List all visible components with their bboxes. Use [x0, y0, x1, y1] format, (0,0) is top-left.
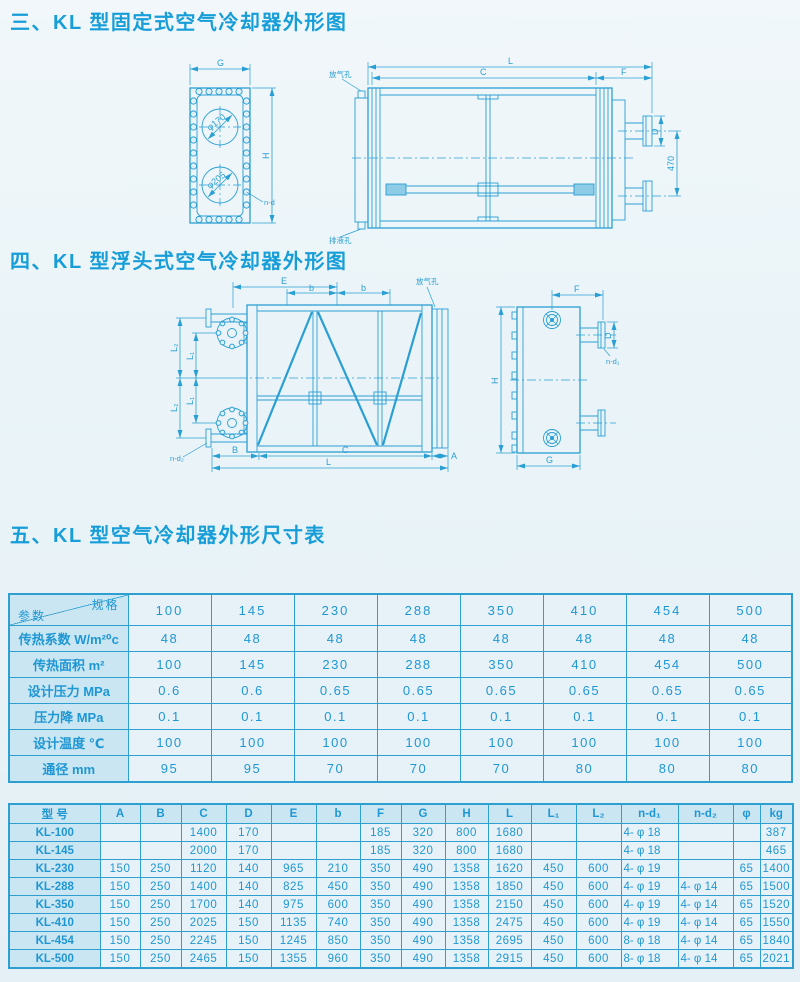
dimension-value: 2915 — [488, 950, 531, 969]
dimension-value: 960 — [316, 950, 360, 969]
parameter-value: 0.1 — [543, 704, 626, 730]
dimension-value — [271, 842, 316, 860]
dimension-column-header: E — [271, 804, 316, 824]
section3-title: 三、KL 型固定式空气冷却器外形图 — [10, 6, 347, 35]
dimension-value: 1850 — [488, 878, 531, 896]
dimension-value: 1358 — [445, 932, 488, 950]
model-row: KL-5001502502465150135596035049013582915… — [9, 950, 793, 969]
param-axis-label: 参数 — [18, 607, 46, 624]
parameter-row: 传热系数 W/m²⁰c4848484848484848 — [9, 626, 792, 652]
dimension-value: 600 — [576, 878, 621, 896]
parameter-value: 0.65 — [626, 678, 709, 704]
drain-hole-label: 排液孔 — [329, 235, 352, 245]
dimension-value: 150 — [100, 896, 140, 914]
dimension-value: 150 — [100, 878, 140, 896]
dimension-value — [576, 842, 621, 860]
dimension-value: 1358 — [445, 896, 488, 914]
parameter-label: 传热系数 W/m²⁰c — [9, 626, 128, 652]
dimension-value: 2475 — [488, 914, 531, 932]
dim-D: D — [650, 128, 660, 135]
model-row: KL-145200017018532080016804- φ 18465 — [9, 842, 793, 860]
dimension-value: 825 — [271, 878, 316, 896]
model-name: KL-410 — [9, 914, 100, 932]
section5-title: 五、KL 型空气冷却器外形尺寸表 — [10, 519, 326, 548]
dim-L1-top: L₁ — [185, 352, 195, 360]
dim-G: G — [546, 455, 553, 465]
dimension-value: 450 — [531, 878, 576, 896]
parameter-value: 0.6 — [128, 678, 211, 704]
dim-L: L — [326, 457, 331, 467]
dimension-value — [678, 842, 733, 860]
dimension-value: 600 — [316, 896, 360, 914]
dimension-value: 4- φ 19 — [621, 878, 678, 896]
dimension-column-header: L — [488, 804, 531, 824]
dimension-column-header: H — [445, 804, 488, 824]
dimension-column-header: F — [360, 804, 401, 824]
dimension-column-header: G — [401, 804, 445, 824]
performance-table: 规格 参数 100145230288350410454500 传热系数 W/m²… — [8, 593, 793, 783]
parameter-value: 100 — [377, 730, 460, 756]
dimension-value: 1358 — [445, 878, 488, 896]
parameter-value: 454 — [626, 652, 709, 678]
dimension-value: 4- φ 14 — [678, 878, 733, 896]
dimension-value: 975 — [271, 896, 316, 914]
dimension-column-header: kg — [760, 804, 793, 824]
spec-column-header: 100 — [128, 594, 211, 626]
document-page: 三、KL 型固定式空气冷却器外形图 四、KL 型浮头式空气冷却器外形图 五、KL… — [0, 0, 800, 982]
dimension-value: 65 — [733, 914, 760, 932]
dimension-value: 2025 — [181, 914, 226, 932]
parameter-value: 70 — [294, 756, 377, 783]
dimension-value: 350 — [360, 950, 401, 969]
parameter-label: 设计温度 ℃ — [9, 730, 128, 756]
parameter-value: 48 — [626, 626, 709, 652]
dim-H: H — [261, 153, 271, 160]
dimension-value — [140, 824, 181, 842]
dimension-value: 1400 — [760, 860, 793, 878]
spec-column-header: 350 — [460, 594, 543, 626]
dimension-value: 1358 — [445, 950, 488, 969]
dimension-value: 490 — [401, 878, 445, 896]
model-row: KL-2881502501400140825450350490135818504… — [9, 878, 793, 896]
parameter-value: 0.65 — [460, 678, 543, 704]
dimension-value: 150 — [226, 914, 271, 932]
dim-L1-bottom: L₁ — [185, 397, 195, 405]
parameter-row: 设计压力 MPa0.60.60.650.650.650.650.650.65 — [9, 678, 792, 704]
parameter-value: 95 — [128, 756, 211, 783]
dimension-value: 450 — [531, 896, 576, 914]
dimension-value: 140 — [226, 878, 271, 896]
dimension-value: 850 — [316, 932, 360, 950]
bolt-lugs — [512, 312, 517, 452]
dimension-value: 1520 — [760, 896, 793, 914]
dimension-value — [531, 842, 576, 860]
dimension-value: 4- φ 19 — [621, 860, 678, 878]
parameter-row: 传热面积 m²100145230288350410454500 — [9, 652, 792, 678]
model-name: KL-500 — [9, 950, 100, 969]
dimension-value: 1358 — [445, 914, 488, 932]
dimension-value: 8- φ 18 — [621, 932, 678, 950]
dimension-value: 210 — [316, 860, 360, 878]
parameter-label: 传热面积 m² — [9, 652, 128, 678]
spec-axis-label: 规格 — [91, 596, 119, 613]
dim-L2-bottom: L₂ — [169, 403, 179, 412]
dimension-value: 965 — [271, 860, 316, 878]
parameter-value: 80 — [543, 756, 626, 783]
dimension-value: 490 — [401, 932, 445, 950]
parameter-value: 0.65 — [543, 678, 626, 704]
parameter-value: 100 — [543, 730, 626, 756]
dimension-value: 800 — [445, 842, 488, 860]
parameter-value: 48 — [211, 626, 294, 652]
parameter-value: 0.1 — [460, 704, 543, 730]
spec-column-header: 288 — [377, 594, 460, 626]
dimension-value: 740 — [316, 914, 360, 932]
dimension-value: 150 — [226, 950, 271, 969]
dimension-value: 450 — [531, 860, 576, 878]
dimension-value: 600 — [576, 950, 621, 969]
parameter-value: 95 — [211, 756, 294, 783]
dimension-value: 2695 — [488, 932, 531, 950]
parameter-value: 0.65 — [377, 678, 460, 704]
parameter-value: 0.1 — [128, 704, 211, 730]
parameter-value: 48 — [128, 626, 211, 652]
parameter-value: 70 — [377, 756, 460, 783]
dimension-value: 250 — [140, 878, 181, 896]
upper-flange — [544, 312, 561, 329]
dimension-value: 185 — [360, 842, 401, 860]
spec-column-header: 230 — [294, 594, 377, 626]
parameter-row: 通径 mm9595707070808080 — [9, 756, 792, 783]
dimension-value: 1680 — [488, 842, 531, 860]
model-name: KL-454 — [9, 932, 100, 950]
dimension-column-header: L₂ — [576, 804, 621, 824]
dimension-value — [733, 824, 760, 842]
dimension-value — [678, 824, 733, 842]
dimension-value: 1245 — [271, 932, 316, 950]
nozzle-dia-170: φ170 — [205, 112, 228, 133]
dimension-value: 450 — [531, 914, 576, 932]
model-name: KL-350 — [9, 896, 100, 914]
dimension-value: 1620 — [488, 860, 531, 878]
parameter-value: 100 — [128, 730, 211, 756]
dimension-value: 4- φ 19 — [621, 914, 678, 932]
dimension-value: 490 — [401, 896, 445, 914]
parameter-value: 0.1 — [626, 704, 709, 730]
spec-column-header: 145 — [211, 594, 294, 626]
parameter-value: 48 — [460, 626, 543, 652]
parameter-label: 压力降 MPa — [9, 704, 128, 730]
spec-column-header: 500 — [709, 594, 792, 626]
parameter-value: 80 — [626, 756, 709, 783]
dim-F: F — [574, 284, 580, 294]
dimension-column-header: D — [226, 804, 271, 824]
dimension-value: 490 — [401, 860, 445, 878]
dimension-value — [531, 824, 576, 842]
parameter-value: 100 — [294, 730, 377, 756]
dimension-value — [733, 842, 760, 860]
parameter-value: 80 — [709, 756, 792, 783]
parameter-value: 0.1 — [211, 704, 294, 730]
dimension-value: 65 — [733, 878, 760, 896]
dimension-value: 250 — [140, 860, 181, 878]
dim-L: L — [508, 56, 513, 66]
dimension-value: 600 — [576, 896, 621, 914]
dimension-value: 4- φ 18 — [621, 842, 678, 860]
dimension-value: 350 — [360, 860, 401, 878]
dimension-value: 4- φ 14 — [678, 914, 733, 932]
dimension-value: 600 — [576, 914, 621, 932]
parameter-value: 100 — [211, 730, 294, 756]
dimension-value: 350 — [360, 914, 401, 932]
dimension-value: 490 — [401, 950, 445, 969]
dimension-value: 250 — [140, 932, 181, 950]
dim-G: G — [217, 58, 224, 68]
dimension-value: 140 — [226, 860, 271, 878]
parameter-value: 350 — [460, 652, 543, 678]
model-row: KL-3501502501700140975600350490135821504… — [9, 896, 793, 914]
parameter-value: 0.65 — [294, 678, 377, 704]
section4-title: 四、KL 型浮头式空气冷却器外形图 — [10, 245, 347, 274]
dimension-column-header: A — [100, 804, 140, 824]
dimension-value: 1550 — [760, 914, 793, 932]
parameter-row: 压力降 MPa0.10.10.10.10.10.10.10.1 — [9, 704, 792, 730]
dim-E: E — [281, 276, 287, 286]
dim-F: F — [621, 67, 627, 77]
corner-cell: 规格 参数 — [9, 594, 128, 626]
dimension-value — [316, 842, 360, 860]
dimension-value: 150 — [100, 914, 140, 932]
dimension-value: 140 — [226, 896, 271, 914]
dimension-value: 4- φ 14 — [678, 896, 733, 914]
dimension-value: 1400 — [181, 824, 226, 842]
dimension-value: 800 — [445, 824, 488, 842]
dimension-value: 65 — [733, 932, 760, 950]
dim-A: A — [451, 451, 457, 461]
parameter-value: 48 — [377, 626, 460, 652]
vent-hole-label: 放气孔 — [329, 69, 352, 79]
parameter-label: 通径 mm — [9, 756, 128, 783]
spec-column-header: 454 — [626, 594, 709, 626]
parameter-label: 设计压力 MPa — [9, 678, 128, 704]
dimension-value: 170 — [226, 842, 271, 860]
bolt-callout-nd2: n-d₂ — [170, 454, 184, 463]
dimension-value: 1358 — [445, 860, 488, 878]
dim-H: H — [490, 378, 500, 385]
floating-cooler-side-view-drawing: F D n-d₁ H G — [484, 282, 659, 490]
parameter-value: 0.1 — [377, 704, 460, 730]
model-row: KL-2301502501120140965210350490135816204… — [9, 860, 793, 878]
dim-b2: b — [361, 283, 366, 293]
spec-column-header: 410 — [543, 594, 626, 626]
dimension-value: 350 — [360, 896, 401, 914]
dimension-value: 320 — [401, 824, 445, 842]
dimension-value: 450 — [531, 932, 576, 950]
model-name: KL-145 — [9, 842, 100, 860]
spec-header-row: 规格 参数 100145230288350410454500 — [9, 594, 792, 626]
dimension-value — [576, 824, 621, 842]
fixed-cooler-side-view-drawing: L C F 放气孔 排液孔 D 470 — [328, 55, 700, 245]
dimension-value: 320 — [401, 842, 445, 860]
dimension-value: 450 — [316, 878, 360, 896]
dimension-value: 150 — [100, 860, 140, 878]
dim-C: C — [342, 445, 349, 455]
floating-cooler-main-view-drawing: E b b L₁ L₁ — [168, 276, 470, 490]
parameter-value: 145 — [211, 652, 294, 678]
dimension-value: 450 — [531, 950, 576, 969]
dimension-value: 1700 — [181, 896, 226, 914]
parameter-value: 100 — [626, 730, 709, 756]
dimension-value: 1135 — [271, 914, 316, 932]
dimension-column-header: b — [316, 804, 360, 824]
parameter-value: 0.1 — [709, 704, 792, 730]
dimension-value: 1680 — [488, 824, 531, 842]
parameter-value: 410 — [543, 652, 626, 678]
model-row: KL-100140017018532080016804- φ 18387 — [9, 824, 793, 842]
dimension-column-header: C — [181, 804, 226, 824]
dimension-value: 490 — [401, 914, 445, 932]
parameter-row: 设计温度 ℃100100100100100100100100 — [9, 730, 792, 756]
parameter-value: 48 — [543, 626, 626, 652]
dimension-value — [316, 824, 360, 842]
dimension-value: 4- φ 18 — [621, 824, 678, 842]
dimension-value: 1400 — [181, 878, 226, 896]
dimension-value: 350 — [360, 932, 401, 950]
parameter-value: 100 — [460, 730, 543, 756]
parameter-value: 100 — [128, 652, 211, 678]
dimension-column-header: n-d₂ — [678, 804, 733, 824]
dimension-value: 2150 — [488, 896, 531, 914]
dimension-value — [140, 842, 181, 860]
dimension-value: 1840 — [760, 932, 793, 950]
dim-C: C — [480, 67, 487, 77]
dimension-column-header: L₁ — [531, 804, 576, 824]
parameter-value: 0.65 — [709, 678, 792, 704]
model-row: KL-4541502502245150124585035049013582695… — [9, 932, 793, 950]
bolt-callout-nd1: n-d₁ — [606, 357, 620, 366]
model-name: KL-100 — [9, 824, 100, 842]
dim-header-row: 型 号ABCDEbFGHLL₁L₂n-d₁n-d₂φkg — [9, 804, 793, 824]
dimension-value: 465 — [760, 842, 793, 860]
dimension-value: 65 — [733, 950, 760, 969]
dimension-value: 250 — [140, 914, 181, 932]
dimension-value — [100, 842, 140, 860]
parameter-value: 288 — [377, 652, 460, 678]
parameter-value: 230 — [294, 652, 377, 678]
dimension-value: 350 — [360, 878, 401, 896]
dimension-value: 65 — [733, 860, 760, 878]
dimension-value: 150 — [100, 932, 140, 950]
vent-hole-label: 放气孔 — [416, 276, 439, 286]
dimension-column-header: n-d₁ — [621, 804, 678, 824]
dimension-value: 2245 — [181, 932, 226, 950]
dimension-value: 4- φ 14 — [678, 950, 733, 969]
dimension-value: 2000 — [181, 842, 226, 860]
bolt-callout-nd: n-d — [264, 198, 275, 207]
dim-b1: b — [309, 283, 314, 293]
parameter-value: 48 — [294, 626, 377, 652]
parameter-value: 48 — [709, 626, 792, 652]
dimension-value: 185 — [360, 824, 401, 842]
dimension-column-header: B — [140, 804, 181, 824]
dimension-value: 2465 — [181, 950, 226, 969]
fixed-cooler-front-view-drawing: G φ170 φ205 H n-d — [172, 55, 292, 240]
model-column-header: 型 号 — [9, 804, 100, 824]
dimension-value: 600 — [576, 860, 621, 878]
dimension-value: 170 — [226, 824, 271, 842]
nozzle-dia-205: φ205 — [205, 170, 228, 191]
dimension-value: 250 — [140, 896, 181, 914]
dimension-value: 250 — [140, 950, 181, 969]
dimension-value: 2021 — [760, 950, 793, 969]
model-row: KL-4101502502025150113574035049013582475… — [9, 914, 793, 932]
parameter-value: 500 — [709, 652, 792, 678]
parameter-value: 0.1 — [294, 704, 377, 730]
dim-B: B — [232, 445, 238, 455]
dimension-value: 4- φ 14 — [678, 932, 733, 950]
dimension-value: 65 — [733, 896, 760, 914]
parameter-value: 0.6 — [211, 678, 294, 704]
dimension-value: 1500 — [760, 878, 793, 896]
dimension-value — [678, 860, 733, 878]
dimension-value — [100, 824, 140, 842]
dimension-value: 600 — [576, 932, 621, 950]
dimension-value: 8- φ 18 — [621, 950, 678, 969]
dimension-value — [271, 824, 316, 842]
lower-flange — [544, 430, 561, 447]
dimension-value: 387 — [760, 824, 793, 842]
dimension-value: 150 — [226, 932, 271, 950]
dimension-value: 1355 — [271, 950, 316, 969]
model-name: KL-230 — [9, 860, 100, 878]
parameter-value: 70 — [460, 756, 543, 783]
dimension-value: 4- φ 19 — [621, 896, 678, 914]
dim-470: 470 — [666, 156, 676, 171]
dimension-table: 型 号ABCDEbFGHLL₁L₂n-d₁n-d₂φkg KL-10014001… — [8, 803, 794, 969]
dimension-value: 150 — [100, 950, 140, 969]
dim-D: D — [603, 332, 613, 339]
dimension-value: 1120 — [181, 860, 226, 878]
model-name: KL-288 — [9, 878, 100, 896]
parameter-value: 100 — [709, 730, 792, 756]
dimension-column-header: φ — [733, 804, 760, 824]
dim-L2-top: L₂ — [169, 343, 179, 352]
